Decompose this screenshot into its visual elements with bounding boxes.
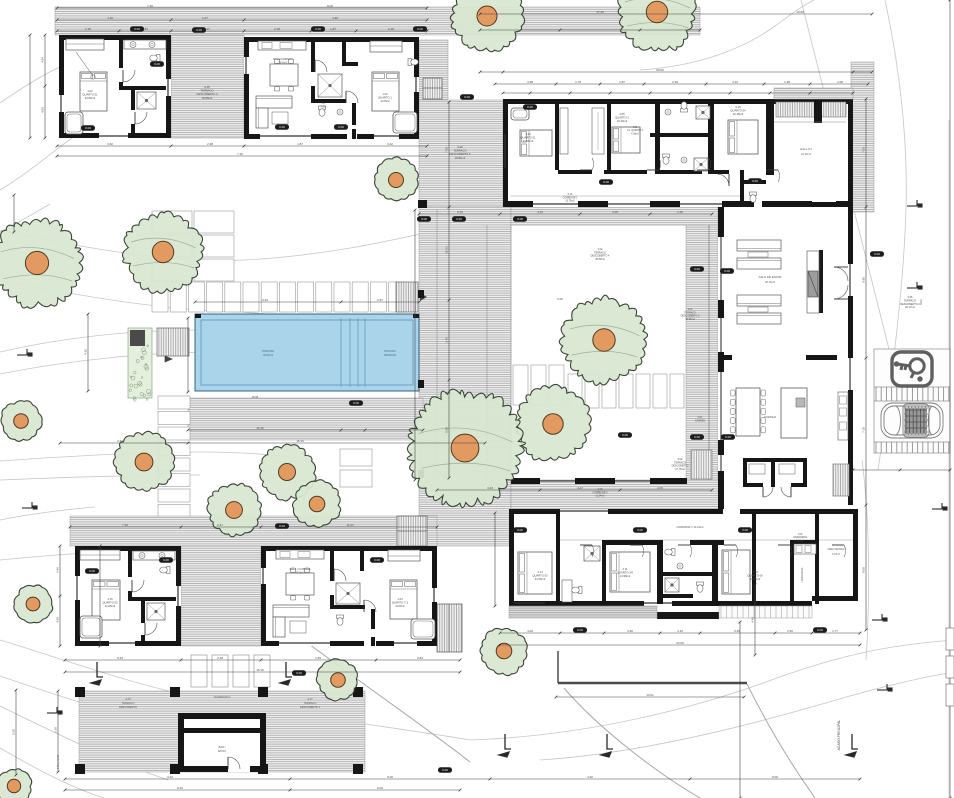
svg-text:15.15: 15.15 [296, 439, 304, 443]
svg-text:APOIO: APOIO [218, 749, 226, 753]
svg-text:21.05m2: 21.05m2 [105, 604, 116, 608]
svg-text:4.02: 4.02 [527, 629, 533, 633]
svg-text:3.40: 3.40 [445, 337, 449, 343]
svg-text:4.43: 4.43 [537, 210, 543, 214]
svg-text:24.8m2: 24.8m2 [396, 604, 405, 608]
svg-text:0.00: 0.00 [527, 105, 533, 109]
svg-text:3.18: 3.18 [54, 727, 58, 733]
svg-text:0.00: 0.00 [603, 180, 609, 184]
svg-text:9.80: 9.80 [862, 277, 866, 283]
svg-text:5.08: 5.08 [445, 427, 449, 433]
svg-text:2.48: 2.48 [274, 27, 280, 31]
svg-text:QUARTO 06: QUARTO 06 [747, 574, 763, 578]
svg-text:4.60: 4.60 [332, 16, 338, 20]
svg-text:46.84m2: 46.84m2 [263, 353, 274, 357]
svg-text:4.06: 4.06 [41, 107, 45, 113]
svg-text:2.05: 2.05 [657, 486, 663, 490]
svg-text:0.00: 0.00 [196, 28, 202, 32]
svg-text:0.00: 0.00 [622, 433, 628, 437]
svg-text:15.15: 15.15 [256, 668, 264, 672]
svg-text:2.60: 2.60 [117, 439, 123, 443]
svg-text:38.86m2: 38.86m2 [595, 258, 605, 261]
svg-text:A.08: A.08 [204, 85, 210, 89]
svg-text:QUARTO 04: QUARTO 04 [730, 109, 746, 113]
svg-text:0.45: 0.45 [734, 629, 740, 633]
svg-text:0.00: 0.00 [417, 27, 423, 31]
svg-text:36.95: 36.95 [252, 396, 259, 399]
svg-text:LAVANDERIA: LAVANDERIA [793, 536, 808, 539]
svg-text:0.00: 0.00 [724, 269, 730, 273]
svg-text:ACARO PRINCIPAL: ACARO PRINCIPAL [837, 720, 841, 751]
svg-text:4.30: 4.30 [84, 349, 88, 355]
svg-text:HALL P1: HALL P1 [800, 147, 812, 151]
svg-text:7.30: 7.30 [147, 4, 153, 8]
svg-text:0.00: 0.00 [279, 524, 285, 528]
svg-text:0.00: 0.00 [154, 62, 160, 66]
svg-text:0.00: 0.00 [315, 27, 321, 31]
svg-text:4.46: 4.46 [751, 617, 755, 623]
svg-text:15.15: 15.15 [256, 426, 264, 430]
svg-text:7.00: 7.00 [862, 147, 866, 153]
svg-text:0.00: 0.00 [421, 217, 427, 221]
svg-text:0.00: 0.00 [456, 217, 462, 221]
svg-text:2.48: 2.48 [217, 656, 223, 660]
svg-text:0.00: 0.00 [374, 558, 380, 562]
svg-text:17.45: 17.45 [596, 10, 604, 14]
svg-text:2.60m ALTO: 2.60m ALTO [56, 755, 60, 769]
svg-text:23.49m2: 23.49m2 [801, 152, 812, 156]
svg-text:1.04: 1.04 [397, 597, 403, 601]
svg-text:3.40: 3.40 [487, 486, 493, 490]
svg-text:14.98m2: 14.98m2 [620, 574, 631, 578]
svg-text:PISCINA: PISCINA [262, 349, 274, 353]
svg-text:3.98: 3.98 [527, 80, 533, 84]
svg-text:7.20: 7.20 [237, 152, 243, 156]
svg-text:TERRACO: TERRACO [122, 701, 135, 705]
svg-text:I.S.: I.S. [321, 101, 325, 105]
svg-text:10.56: 10.56 [445, 246, 449, 254]
svg-text:3.13: 3.13 [525, 132, 531, 136]
svg-text:AREA TECNICA: AREA TECNICA [827, 548, 845, 551]
svg-text:1.83: 1.83 [315, 656, 321, 660]
svg-text:27.75m2: 27.75m2 [675, 468, 685, 471]
svg-text:13.61: 13.61 [646, 693, 654, 697]
svg-text:2.08: 2.08 [837, 80, 843, 84]
svg-text:2.67: 2.67 [377, 298, 383, 302]
svg-text:13.76m2: 13.76m2 [565, 200, 575, 203]
svg-text:0.00: 0.00 [517, 217, 523, 221]
svg-text:0.00: 0.00 [637, 528, 643, 532]
svg-text:TERRACO: TERRACO [304, 701, 317, 705]
svg-text:24.8m2: 24.8m2 [381, 99, 390, 103]
svg-text:QUARTO 01: QUARTO 01 [520, 136, 536, 140]
svg-text:0.00: 0.00 [577, 628, 583, 632]
svg-text:7.09: 7.09 [798, 534, 803, 536]
svg-text:0.00: 0.00 [725, 435, 731, 439]
svg-text:0.00: 0.00 [89, 569, 95, 573]
svg-text:3.15: 3.15 [735, 105, 741, 109]
svg-text:2.48: 2.48 [388, 27, 394, 31]
svg-text:A.05: A.05 [125, 697, 131, 701]
svg-text:4.15: 4.15 [107, 597, 113, 601]
svg-text:BAR /: BAR / [219, 745, 226, 749]
svg-text:1.87: 1.87 [330, 27, 336, 31]
svg-text:4.05: 4.05 [612, 210, 618, 214]
svg-text:I.S. QUARTO 2: I.S. QUARTO 2 [627, 129, 643, 132]
svg-text:QUARTO 2: QUARTO 2 [615, 116, 629, 120]
svg-text:8.07m2: 8.07m2 [832, 553, 841, 556]
svg-text:RUA: RUA [919, 299, 923, 305]
svg-text:7.08: 7.08 [752, 570, 758, 574]
svg-text:8.40: 8.40 [177, 786, 183, 790]
svg-text:2.46: 2.46 [457, 210, 463, 214]
svg-text:3.40: 3.40 [167, 775, 173, 779]
svg-text:8.00: 8.00 [862, 567, 866, 573]
svg-text:1.60: 1.60 [677, 210, 683, 214]
svg-text:19.40m2: 19.40m2 [617, 119, 628, 123]
svg-text:QUARTO 03: QUARTO 03 [102, 601, 118, 605]
svg-text:5.00: 5.00 [387, 775, 393, 779]
svg-text:SALA / COZINHA: SALA / COZINHA [289, 567, 310, 571]
svg-text:SALA DE ESTAR: SALA DE ESTAR [758, 275, 782, 279]
svg-text:6.48: 6.48 [457, 145, 463, 149]
svg-text:1.02: 1.02 [87, 89, 93, 93]
svg-text:1.78: 1.78 [575, 80, 581, 84]
svg-text:0.00: 0.00 [752, 179, 758, 183]
svg-text:TERRACO: TERRACO [200, 89, 213, 93]
svg-text:11.24m2: 11.24m2 [595, 495, 605, 498]
svg-text:4.05m2: 4.05m2 [631, 133, 639, 135]
svg-text:24.80m2: 24.80m2 [85, 96, 96, 100]
svg-text:2.48: 2.48 [85, 27, 91, 31]
svg-text:QUARTO 1: QUARTO 1 [378, 96, 392, 100]
svg-text:23.00: 23.00 [676, 641, 684, 645]
svg-text:0.00: 0.00 [163, 558, 169, 562]
svg-text:0.00: 0.00 [279, 125, 285, 129]
svg-text:2.47: 2.47 [217, 523, 223, 527]
svg-text:CHURRASCO: CHURRASCO [214, 695, 231, 699]
svg-text:8.00: 8.00 [327, 4, 333, 8]
svg-text:3.62: 3.62 [107, 142, 113, 146]
svg-text:0.00: 0.00 [85, 126, 91, 130]
svg-text:4.05: 4.05 [619, 112, 625, 116]
svg-text:7.18: 7.18 [862, 427, 866, 433]
svg-text:CORRIDOR 1 13.24m2: CORRIDOR 1 13.24m2 [676, 525, 704, 529]
svg-text:2.07: 2.07 [202, 16, 208, 20]
svg-text:1.87: 1.87 [297, 142, 303, 146]
svg-text:6.00: 6.00 [377, 786, 383, 790]
svg-text:DESCOBERTO 4: DESCOBERTO 4 [197, 92, 218, 96]
svg-text:2.50: 2.50 [787, 629, 793, 633]
svg-text:0.00: 0.00 [338, 125, 344, 129]
svg-text:38.15m2: 38.15m2 [765, 280, 776, 284]
svg-text:4.94: 4.94 [41, 57, 45, 63]
svg-text:A.07: A.07 [307, 697, 313, 701]
svg-text:10.98: 10.98 [796, 10, 804, 14]
svg-text:0.00: 0.00 [134, 27, 140, 31]
svg-text:LAVANDERIA: LAVANDERIA [801, 567, 804, 582]
svg-text:0.00: 0.00 [296, 671, 302, 675]
svg-text:4.60: 4.60 [56, 617, 60, 623]
svg-text:4.10: 4.10 [677, 629, 683, 633]
svg-text:4.92: 4.92 [587, 775, 593, 779]
svg-text:16.48m2: 16.48m2 [733, 112, 744, 116]
svg-text:4.10: 4.10 [732, 80, 738, 84]
svg-text:0.00: 0.00 [694, 435, 700, 439]
svg-text:4.46: 4.46 [56, 567, 60, 573]
svg-text:PISCINA: PISCINA [384, 349, 395, 353]
svg-text:4.14: 4.14 [537, 570, 543, 574]
svg-text:7.30: 7.30 [122, 523, 128, 527]
svg-text:7.08: 7.08 [445, 147, 449, 153]
svg-text:21.05m2: 21.05m2 [523, 139, 534, 143]
svg-text:0.00: 0.00 [442, 768, 448, 772]
svg-text:63.90: 63.90 [656, 68, 664, 72]
svg-text:5.23: 5.23 [117, 656, 123, 660]
svg-text:QUARTO C 2: QUARTO C 2 [392, 601, 409, 605]
svg-text:38.86m2: 38.86m2 [202, 96, 213, 100]
svg-text:1.87: 1.87 [619, 80, 625, 84]
svg-text:0.00: 0.00 [464, 95, 470, 99]
svg-text:GARDEN: GARDEN [695, 419, 706, 422]
svg-text:0.00: 0.00 [874, 252, 880, 256]
svg-text:COZINHA: COZINHA [764, 415, 777, 419]
svg-text:2.30: 2.30 [672, 80, 678, 84]
svg-text:3.30: 3.30 [627, 629, 633, 633]
svg-text:1.77: 1.77 [832, 629, 838, 633]
svg-text:1.98: 1.98 [784, 80, 790, 84]
svg-text:0.83: 0.83 [417, 656, 423, 660]
svg-text:28.0m2: 28.0m2 [279, 61, 288, 65]
svg-text:4.01: 4.01 [633, 127, 638, 129]
svg-text:TERRACO: TERRACO [453, 149, 466, 153]
svg-text:DESCOBERTO: DESCOBERTO [119, 705, 137, 709]
svg-text:4.40: 4.40 [107, 16, 113, 20]
svg-text:7.05: 7.05 [320, 105, 326, 109]
svg-text:QUARTO 01: QUARTO 01 [82, 93, 98, 97]
svg-text:16.09m2: 16.09m2 [750, 577, 761, 581]
svg-text:2.60: 2.60 [12, 729, 16, 735]
svg-text:5.08: 5.08 [557, 297, 563, 301]
svg-text:DESCOBERTO 6: DESCOBERTO 6 [450, 152, 471, 156]
svg-text:9.40: 9.40 [262, 298, 268, 302]
svg-text:SALA/COZINHA: SALA/COZINHA [273, 57, 293, 61]
svg-text:CRIANCAS: CRIANCAS [384, 354, 397, 357]
svg-text:11.63: 11.63 [346, 523, 354, 527]
svg-text:8.00: 8.00 [772, 775, 778, 779]
svg-text:5.17m2: 5.17m2 [796, 540, 804, 542]
svg-text:2.38: 2.38 [207, 142, 213, 146]
svg-text:4.11: 4.11 [622, 567, 628, 571]
svg-text:4.47: 4.47 [577, 486, 583, 490]
svg-text:0.00: 0.00 [694, 267, 700, 271]
svg-text:1.02: 1.02 [382, 92, 388, 96]
svg-text:28.86m2: 28.86m2 [455, 156, 466, 160]
svg-text:20.17m2: 20.17m2 [905, 306, 915, 309]
svg-text:QUARTO 03: QUARTO 03 [532, 574, 548, 578]
svg-text:36.95m2: 36.95m2 [685, 318, 695, 321]
svg-text:21.05m2: 21.05m2 [535, 577, 546, 581]
svg-text:0.00: 0.00 [353, 401, 359, 405]
svg-text:3.42: 3.42 [387, 142, 393, 146]
svg-text:0.00: 0.00 [517, 528, 523, 532]
svg-text:0.00: 0.00 [817, 628, 823, 632]
svg-text:DESCOBERTO 1: DESCOBERTO 1 [300, 705, 321, 709]
svg-text:2.46: 2.46 [446, 392, 451, 395]
svg-text:25.8m2: 25.8m2 [296, 571, 305, 575]
svg-text:QUARTO 3/4: QUARTO 3/4 [617, 571, 633, 575]
svg-text:0.00: 0.00 [742, 528, 748, 532]
